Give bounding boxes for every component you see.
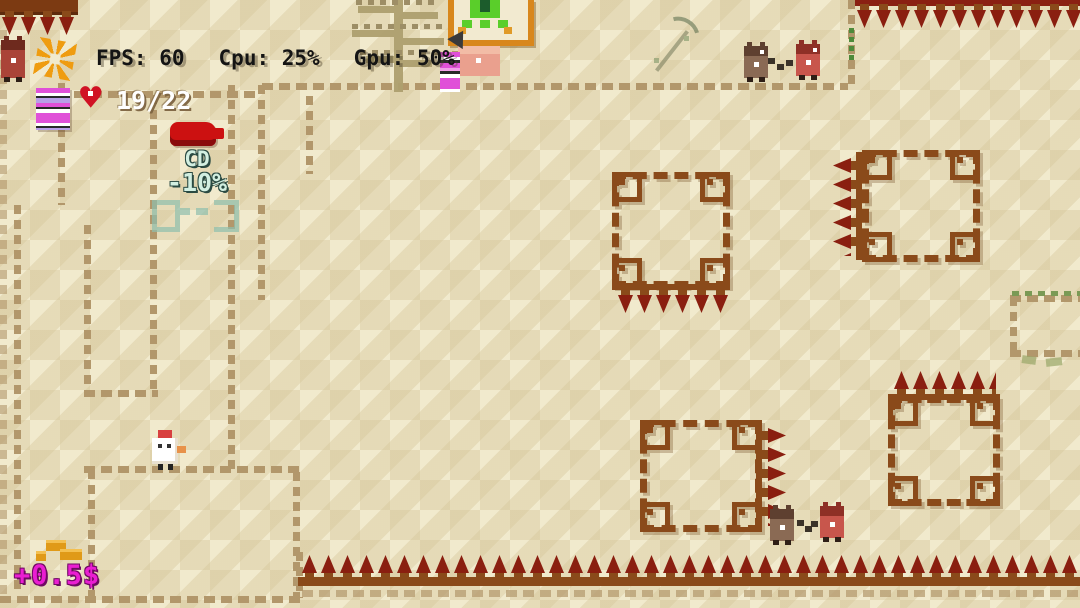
gear-icon[interactable]: [33, 37, 77, 81]
wall-segment: [258, 85, 265, 300]
game-viewport: FPS: 60 Cpu: 25% Gpu: 50% ♥ 19/22 CD -10…: [0, 0, 1080, 608]
coin-icon: [60, 549, 82, 560]
npc-foot: [823, 537, 829, 542]
projectile: [786, 60, 793, 66]
sketch-dot: [684, 36, 689, 41]
wall-segment: [1010, 297, 1017, 352]
merchant-stall: [458, 46, 500, 76]
door-npc-red[interactable]: [796, 40, 820, 80]
ledge: [302, 590, 1080, 597]
ledge: [0, 596, 300, 603]
perf-hud: FPS: 60 Cpu: 25% Gpu: 50%: [96, 46, 455, 70]
chicken-foot: [158, 464, 163, 470]
npc-dot: [780, 525, 785, 530]
npc-cap: [820, 506, 844, 516]
ornament-corner: [970, 476, 1000, 506]
ornament-corner: [950, 150, 980, 180]
ornament-square: [888, 396, 1000, 506]
tree-leaves: [356, 0, 440, 5]
player-chicken[interactable]: [150, 430, 186, 470]
pickaxe-head: [659, 9, 707, 51]
cpu-readout: Cpu: 25%: [219, 46, 320, 70]
chicken-eye: [158, 444, 162, 448]
ornament-corner: [612, 172, 642, 202]
wall-segment: [0, 30, 7, 596]
stall-dot: [476, 58, 481, 63]
ornament-square: [612, 172, 730, 288]
wall-segment: [150, 95, 157, 391]
hanging-spikes: [616, 289, 728, 313]
door-npc-red[interactable]: [820, 502, 844, 542]
npc-dot: [830, 522, 835, 527]
ledge: [1010, 295, 1080, 302]
gear-hole: [49, 53, 61, 65]
ornament-corner: [888, 476, 918, 506]
npc-foot: [773, 540, 779, 545]
npc-foot: [759, 77, 765, 82]
wall-segment: [14, 205, 21, 595]
grass-tufts: [1022, 355, 1037, 365]
door-npc-brown[interactable]: [744, 42, 768, 82]
item-nub: [212, 128, 224, 139]
wall-spikes: [892, 371, 996, 395]
gpu-readout: Gpu: 50%: [354, 46, 455, 70]
floor-bar: [298, 577, 1080, 586]
faded-platform: [152, 198, 238, 226]
ornament-square: [862, 150, 980, 262]
npc-foot: [835, 537, 841, 542]
platform-dash: [178, 208, 190, 215]
projectile: [797, 520, 804, 526]
projectile: [811, 521, 818, 527]
fps-readout: FPS: 60: [96, 46, 185, 70]
wall-segment: [84, 225, 91, 392]
cooldown-effect: -10%: [152, 170, 242, 196]
projectile: [768, 58, 775, 64]
tree-branch: [402, 12, 438, 19]
ledge: [84, 466, 302, 473]
tree-leaves: [352, 24, 442, 29]
sketch-dot: [654, 58, 659, 63]
projectile: [777, 64, 784, 70]
npc-foot: [785, 540, 791, 545]
chicken-beak: [177, 446, 186, 453]
portal-slot: [480, 0, 490, 12]
npc-cap: [1, 40, 25, 50]
ornament-square: [640, 420, 762, 532]
tree-branch: [402, 38, 444, 45]
ornament-corner: [640, 502, 670, 532]
ornament-corner: [862, 232, 892, 262]
tree-branch: [358, 6, 396, 13]
wall-segment: [306, 96, 313, 174]
door-npc-red[interactable]: [1, 36, 25, 82]
ornament-corner: [640, 420, 670, 450]
cooldown-item[interactable]: [170, 122, 216, 146]
ornament-corner: [862, 150, 892, 180]
pickaxe-sketch: [644, 18, 704, 74]
grass-tufts: [1012, 291, 1080, 296]
floor-spikes: [300, 555, 1080, 579]
cooldown-label: CD -10%: [152, 148, 242, 196]
chicken-foot: [168, 464, 173, 470]
health-counter: 19/22: [116, 86, 191, 115]
npc-foot: [811, 75, 817, 80]
heart-shine: [88, 91, 93, 96]
npc-foot: [747, 77, 753, 82]
wall-spikes: [833, 156, 857, 256]
npc-cap: [770, 509, 794, 519]
portal-corner: [504, 27, 512, 34]
chicken-eye: [167, 444, 171, 448]
money-popup: +0.5$: [14, 560, 100, 591]
ornament-corner: [700, 172, 730, 202]
ledge: [262, 83, 848, 90]
npc-foot: [4, 77, 10, 82]
door-npc-brown[interactable]: [770, 505, 794, 545]
cooldown-name: CD: [152, 148, 242, 170]
npc-dot: [813, 48, 817, 52]
npc-foot: [799, 75, 805, 80]
wall-segment: [228, 85, 235, 470]
portal-checker: [480, 20, 490, 28]
vine: [849, 28, 854, 64]
npc-dot: [754, 62, 759, 67]
npc-foot: [16, 77, 22, 82]
ceiling-spikes: [855, 4, 1080, 28]
ornament-corner: [970, 396, 1000, 426]
npc-dot: [11, 58, 16, 63]
ledge: [84, 390, 158, 397]
platform-block: [152, 200, 180, 232]
heart-icon: ♥: [80, 84, 114, 116]
ornament-corner: [888, 396, 918, 426]
ornament-corner: [950, 232, 980, 262]
platform-block: [214, 200, 239, 232]
ledge: [1010, 350, 1080, 357]
platform-dash: [196, 208, 208, 215]
npc-dot: [760, 50, 764, 54]
npc-dot: [806, 60, 811, 65]
npc-cap: [744, 46, 768, 56]
grass-tufts: [1046, 357, 1063, 367]
chicken-body: [152, 438, 178, 464]
item-books-icon[interactable]: [36, 88, 70, 130]
ceiling-spikes: [0, 11, 78, 35]
tree-branch: [352, 30, 396, 37]
